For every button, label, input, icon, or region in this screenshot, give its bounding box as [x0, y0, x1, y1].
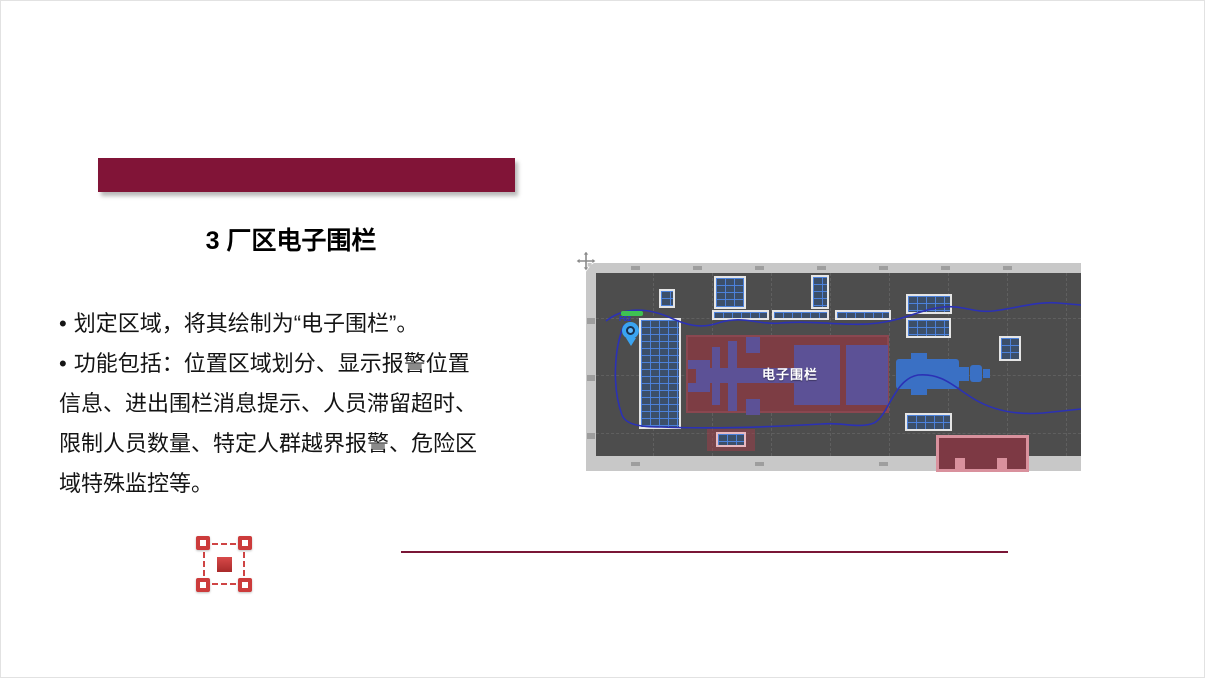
- grid-building: [906, 318, 951, 338]
- ruler-tick: [879, 266, 888, 270]
- ruler-tick: [587, 375, 595, 381]
- ruler-tick: [817, 266, 826, 270]
- grid-tower: [639, 318, 681, 429]
- title-accent-bar: [98, 158, 515, 192]
- building-foot: [955, 458, 965, 470]
- pin-tip: [626, 338, 636, 346]
- bullet-text: 划定区域，将其绘制为“电子围栏”。: [74, 311, 419, 336]
- grid-building: [716, 432, 746, 447]
- grid-line: [596, 433, 1081, 434]
- machinery-shape: [846, 345, 888, 405]
- machinery-blue: [911, 353, 927, 361]
- fence-label: 电子围栏: [762, 364, 818, 383]
- grid-line: [1066, 273, 1067, 456]
- grid-building: [772, 310, 829, 320]
- grid-line: [1007, 273, 1008, 456]
- building-foot: [997, 458, 1007, 470]
- grid-building: [835, 310, 891, 320]
- machinery-shape: [746, 337, 760, 353]
- selection-handle[interactable]: [196, 578, 210, 592]
- grid-building: [811, 275, 829, 309]
- machinery-blue: [959, 367, 969, 381]
- bullet-text: 功能包括：位置区域划分、显示报警位置信息、进出围栏消息提示、人员滞留超时、限制人…: [59, 351, 477, 496]
- grid-building: [999, 336, 1021, 361]
- presentation-slide: 3 厂区电子围栏 •划定区域，将其绘制为“电子围栏”。 •功能包括：位置区域划分…: [0, 0, 1205, 678]
- bullet-marker: •: [59, 351, 67, 376]
- factory-map[interactable]: 电子围栏 F62: [586, 263, 1081, 471]
- grid-building: [712, 310, 769, 320]
- location-pin-icon[interactable]: [622, 322, 639, 346]
- ruler-tick: [755, 462, 764, 466]
- machinery-shape: [688, 383, 710, 392]
- ruler-tick: [631, 462, 640, 466]
- machinery-shape: [746, 399, 760, 415]
- bullet-item: •功能包括：位置区域划分、显示报警位置信息、进出围栏消息提示、人员滞留超时、限制…: [59, 344, 491, 504]
- divider-line: [401, 551, 1008, 553]
- machinery-blue: [896, 359, 959, 389]
- map-ruler-left: [586, 263, 596, 471]
- bullet-marker: •: [59, 311, 67, 336]
- machinery-shape: [712, 347, 720, 369]
- fence-selection-icon[interactable]: [196, 536, 252, 592]
- ruler-tick: [693, 266, 702, 270]
- ruler-tick: [1003, 266, 1012, 270]
- bullet-list: •划定区域，将其绘制为“电子围栏”。 •功能包括：位置区域划分、显示报警位置信息…: [59, 304, 491, 504]
- machinery-blue: [970, 365, 982, 382]
- slide-title: 3 厂区电子围栏: [41, 221, 541, 257]
- grid-building: [714, 276, 746, 309]
- alert-zone-large: [936, 435, 1029, 472]
- selection-handle[interactable]: [238, 536, 252, 550]
- pin-ring: [622, 322, 639, 339]
- alert-zone-small: [707, 429, 755, 451]
- ruler-tick: [587, 318, 595, 324]
- fence-square-icon: [217, 557, 232, 572]
- selection-handle[interactable]: [196, 536, 210, 550]
- machinery-shape: [728, 341, 737, 411]
- electronic-fence-zone[interactable]: 电子围栏: [686, 335, 889, 413]
- ruler-tick: [941, 266, 950, 270]
- ruler-tick: [631, 266, 640, 270]
- machinery-blue: [911, 387, 927, 395]
- move-cursor-icon: [575, 250, 597, 272]
- grid-building: [905, 413, 952, 431]
- ruler-tick: [587, 433, 595, 439]
- machinery-shape: [712, 383, 720, 405]
- machinery-shape: [688, 360, 710, 369]
- grid-line: [889, 273, 890, 456]
- selection-handle[interactable]: [238, 578, 252, 592]
- ruler-tick: [879, 462, 888, 466]
- bullet-item: •划定区域，将其绘制为“电子围栏”。: [59, 304, 491, 344]
- machinery-blue: [983, 369, 990, 378]
- grid-building: [906, 294, 952, 314]
- ruler-tick: [755, 266, 764, 270]
- grid-building: [659, 289, 675, 308]
